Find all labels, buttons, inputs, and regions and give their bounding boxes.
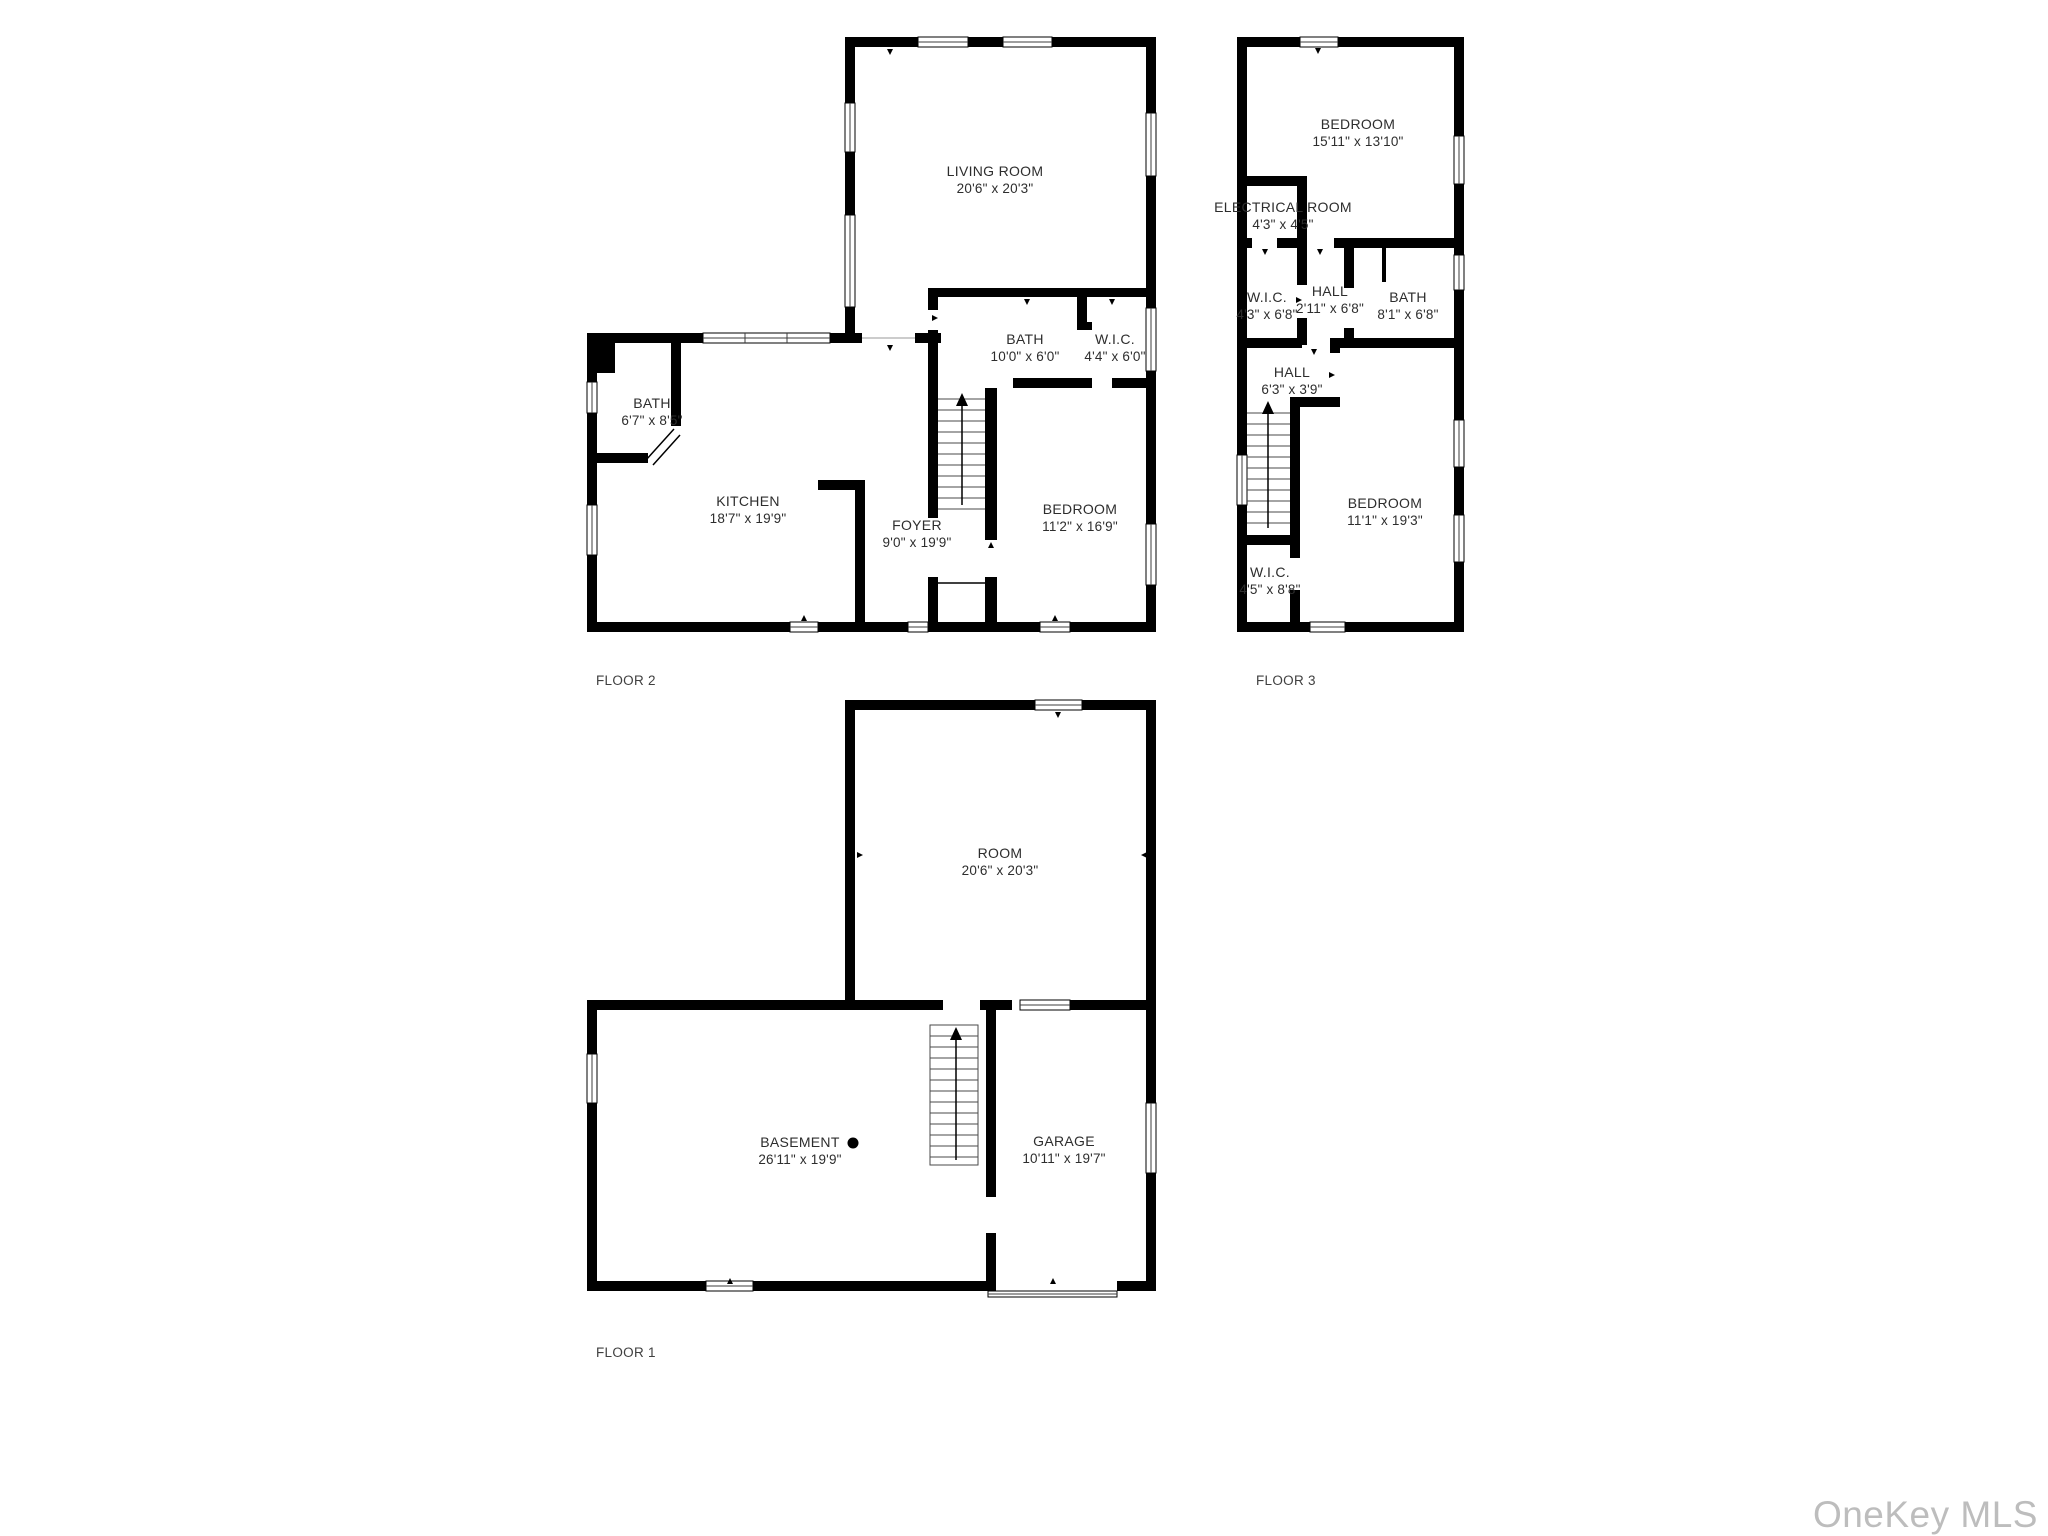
room-dims-wic-lower: 4'5" x 8'8" [1239, 582, 1300, 597]
wall [587, 700, 1156, 1291]
floor-1-plan: ROOM 20'6" x 20'3" BASEMENT 26'11" x 19'… [587, 700, 1156, 1360]
room-name-wic: W.I.C. [1095, 331, 1135, 347]
room-name-bath-mid: BATH [1006, 331, 1044, 347]
room-dims-bedroom-top: 15'11" x 13'10" [1312, 134, 1403, 149]
wall [587, 37, 1156, 632]
window [587, 700, 1156, 1291]
room-dims-electrical: 4'3" x 4'5" [1252, 217, 1313, 232]
room-name-kitchen: KITCHEN [716, 493, 780, 509]
room-dims-kitchen: 18'7" x 19'9" [710, 511, 787, 526]
room-dims-bath3: 8'1" x 6'8" [1377, 307, 1438, 322]
room-dims-wic: 4'4" x 6'0" [1084, 349, 1145, 364]
room-name-room: ROOM [978, 845, 1023, 861]
stairs-up-arrow-icon [1262, 401, 1274, 414]
room-dims-hall-lower: 6'3" x 3'9" [1261, 382, 1322, 397]
floor-plan-image: LIVING ROOM 20'6" x 20'3" BATH 6'7" x 8'… [0, 0, 2048, 1536]
staircase [1247, 401, 1290, 528]
floor-3-labels: BEDROOM 15'11" x 13'10" ELECTRICAL ROOM … [1214, 116, 1439, 597]
room-name-wic-upper: W.I.C. [1247, 289, 1287, 305]
staircase [930, 1025, 978, 1165]
room-name-bedroom-lower: BEDROOM [1348, 495, 1422, 511]
room-dims-garage: 10'11" x 19'7" [1022, 1151, 1105, 1166]
room-name-hall-lower: HALL [1274, 364, 1310, 380]
stairs-up-arrow-icon [950, 1027, 962, 1040]
stair-treads [930, 1036, 978, 1157]
support-column [848, 1138, 859, 1149]
room-name-bath3: BATH [1389, 289, 1427, 305]
floor-plan-canvas: LIVING ROOM 20'6" x 20'3" BATH 6'7" x 8'… [0, 0, 2048, 1536]
angled-bath-door [646, 429, 680, 465]
floor-3-plan: BEDROOM 15'11" x 13'10" ELECTRICAL ROOM … [1214, 37, 1464, 688]
room-name-living-room: LIVING ROOM [947, 163, 1044, 179]
door-marker-icon [727, 712, 1147, 1284]
floor-3-label: FLOOR 3 [1256, 673, 1316, 688]
room-dims-bedroom: 11'2" x 16'9" [1042, 519, 1118, 534]
room-dims-bath-left: 6'7" x 8'5" [621, 413, 682, 428]
room-name-bedroom: BEDROOM [1043, 501, 1117, 517]
room-dims-bedroom-lower: 11'1" x 19'3" [1347, 513, 1423, 528]
room-dims-wic-upper: 4'3" x 6'8" [1236, 307, 1297, 322]
floor-2-plan: LIVING ROOM 20'6" x 20'3" BATH 6'7" x 8'… [587, 37, 1156, 688]
floor-1-label: FLOOR 1 [596, 1345, 656, 1360]
room-name-garage: GARAGE [1033, 1133, 1095, 1149]
room-name-bedroom-top: BEDROOM [1321, 116, 1395, 132]
room-name-hall-upper: HALL [1312, 283, 1348, 299]
floor-2-label: FLOOR 2 [596, 673, 656, 688]
watermark-onekey-mls: OneKey MLS [1813, 1494, 2038, 1535]
room-name-bath-left: BATH [633, 395, 671, 411]
room-dims-living-room: 20'6" x 20'3" [957, 181, 1034, 196]
staircase [938, 393, 985, 509]
stair-outline [930, 1025, 978, 1165]
room-dims-room: 20'6" x 20'3" [962, 863, 1039, 878]
room-dims-foyer: 9'0" x 19'9" [883, 535, 952, 550]
room-name-basement: BASEMENT [760, 1134, 840, 1150]
room-name-wic-lower: W.I.C. [1250, 564, 1290, 580]
room-name-electrical: ELECTRICAL ROOM [1214, 199, 1352, 215]
room-dims-bath-mid: 10'0" x 6'0" [991, 349, 1060, 364]
room-dims-hall-upper: 2'11" x 6'8" [1296, 301, 1364, 316]
room-dims-basement: 26'11" x 19'9" [758, 1152, 841, 1167]
room-name-foyer: FOYER [892, 517, 942, 533]
floor-2-labels: LIVING ROOM 20'6" x 20'3" BATH 6'7" x 8'… [621, 163, 1145, 550]
